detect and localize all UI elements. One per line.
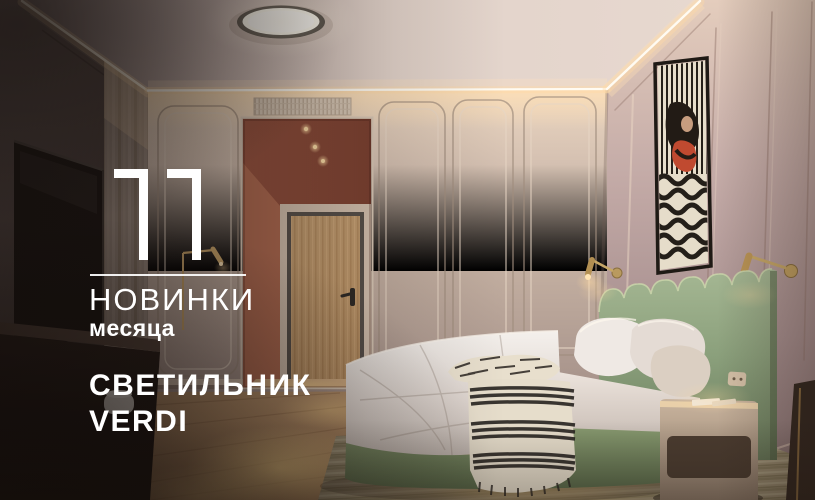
digit-stem (192, 169, 201, 260)
product-line-2: VERDI (89, 404, 311, 440)
digit-one-second (167, 169, 201, 260)
subheading-month: месяца (89, 316, 175, 341)
heading-novinki: НОВИНКИ (89, 283, 255, 317)
digit-stem (139, 169, 148, 260)
product-name: СВЕТИЛЬНИК VERDI (89, 368, 311, 440)
digit-one-first (114, 169, 148, 260)
product-line-1: СВЕТИЛЬНИК (89, 368, 311, 404)
big-number: 11 (114, 169, 201, 260)
divider-line (90, 274, 246, 276)
promo-banner: 11 НОВИНКИ месяца СВЕТИЛЬНИК VERDI (0, 0, 815, 500)
